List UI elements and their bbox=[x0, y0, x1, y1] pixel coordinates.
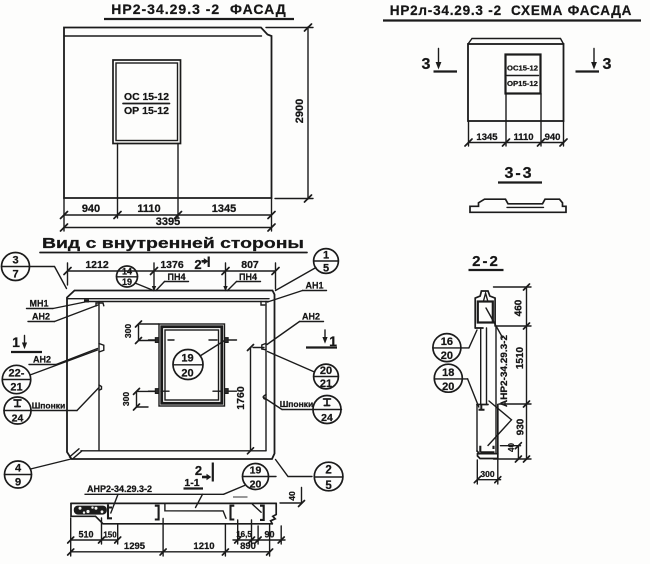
svg-text:ОС 15-12: ОС 15-12 bbox=[124, 91, 169, 103]
svg-text:150: 150 bbox=[103, 531, 117, 540]
svg-text:20: 20 bbox=[320, 365, 332, 377]
svg-text:300: 300 bbox=[121, 392, 131, 406]
svg-text:18: 18 bbox=[442, 367, 454, 379]
svg-text:1210: 1210 bbox=[193, 541, 214, 552]
svg-text:510: 510 bbox=[78, 530, 93, 540]
svg-text:Вид с внутренней стороны: Вид с внутренней стороны bbox=[42, 236, 304, 252]
svg-text:1345: 1345 bbox=[476, 132, 498, 143]
svg-text:21: 21 bbox=[10, 382, 22, 394]
svg-text:2-2: 2-2 bbox=[472, 253, 500, 270]
svg-text:5: 5 bbox=[325, 480, 332, 492]
svg-text:20: 20 bbox=[181, 368, 193, 380]
svg-text:АН2: АН2 bbox=[302, 312, 320, 322]
svg-text:40: 40 bbox=[507, 443, 516, 452]
svg-text:3395: 3395 bbox=[156, 216, 180, 228]
svg-text:1376: 1376 bbox=[160, 259, 184, 271]
svg-text:20: 20 bbox=[441, 350, 453, 362]
svg-text:9: 9 bbox=[15, 477, 21, 489]
svg-text:16,5: 16,5 bbox=[236, 530, 252, 539]
svg-text:890: 890 bbox=[240, 541, 256, 552]
svg-text:460: 460 bbox=[514, 299, 525, 316]
svg-text:1760: 1760 bbox=[235, 386, 247, 410]
svg-text:930: 930 bbox=[516, 418, 527, 435]
svg-text:40: 40 bbox=[287, 491, 297, 501]
svg-text:1: 1 bbox=[323, 250, 329, 262]
svg-text:20: 20 bbox=[250, 479, 262, 491]
svg-text:2: 2 bbox=[195, 463, 202, 478]
svg-text:ОС15-12: ОС15-12 bbox=[507, 64, 538, 73]
svg-text:1: 1 bbox=[12, 334, 20, 350]
svg-text:1110: 1110 bbox=[513, 132, 533, 143]
svg-text:МН1: МН1 bbox=[29, 299, 48, 309]
svg-text:2900: 2900 bbox=[294, 99, 306, 123]
svg-text:2: 2 bbox=[325, 465, 331, 477]
svg-text:АН2: АН2 bbox=[32, 312, 50, 322]
svg-text:3-3: 3-3 bbox=[504, 165, 533, 182]
svg-text:19: 19 bbox=[181, 353, 193, 365]
svg-text:2: 2 bbox=[194, 257, 201, 272]
svg-text:300: 300 bbox=[123, 324, 133, 338]
svg-text:940: 940 bbox=[545, 132, 561, 143]
svg-text:ПН4: ПН4 bbox=[168, 272, 186, 282]
svg-text:АН2: АН2 bbox=[33, 355, 51, 365]
svg-text:ПН4: ПН4 bbox=[239, 272, 257, 282]
svg-text:24: 24 bbox=[321, 412, 333, 424]
svg-text:21: 21 bbox=[320, 378, 332, 390]
svg-text:НР2-34.29.3 -2 ФАСАД: НР2-34.29.3 -2 ФАСАД bbox=[111, 1, 286, 17]
svg-text:807: 807 bbox=[241, 259, 259, 271]
svg-text:АНР2-34.29.3-2: АНР2-34.29.3-2 bbox=[87, 484, 152, 494]
svg-text:22-: 22- bbox=[9, 368, 25, 380]
svg-text:НР2л-34.29.3 -2 СХЕМА ФАСАДА: НР2л-34.29.3 -2 СХЕМА ФАСАДА bbox=[390, 3, 632, 18]
svg-text:3: 3 bbox=[603, 56, 612, 73]
svg-text:1-1: 1-1 bbox=[184, 477, 199, 489]
svg-text:7: 7 bbox=[12, 269, 18, 281]
svg-text:ОР 15-12: ОР 15-12 bbox=[124, 105, 169, 117]
svg-text:Шпонки: Шпонки bbox=[280, 399, 313, 409]
svg-text:1110: 1110 bbox=[137, 203, 160, 215]
svg-text:300: 300 bbox=[480, 469, 494, 479]
svg-text:16: 16 bbox=[441, 336, 453, 348]
svg-text:20: 20 bbox=[442, 381, 454, 393]
svg-text:ОР15-12: ОР15-12 bbox=[507, 79, 538, 88]
svg-text:940: 940 bbox=[82, 203, 100, 215]
svg-text:5: 5 bbox=[323, 263, 329, 275]
svg-text:АНР2-34.29.3-2: АНР2-34.29.3-2 bbox=[499, 335, 509, 407]
svg-text:19: 19 bbox=[250, 465, 262, 477]
svg-text:Шпонки: Шпонки bbox=[32, 401, 65, 411]
svg-text:19: 19 bbox=[122, 277, 132, 287]
svg-text:24: 24 bbox=[12, 413, 24, 425]
svg-text:14: 14 bbox=[122, 267, 132, 277]
svg-text:АН1: АН1 bbox=[305, 281, 323, 291]
svg-text:1212: 1212 bbox=[85, 259, 109, 271]
svg-text:1295: 1295 bbox=[124, 541, 146, 552]
svg-text:1510: 1510 bbox=[515, 346, 526, 369]
svg-text:1345: 1345 bbox=[212, 203, 236, 215]
svg-text:4: 4 bbox=[15, 463, 22, 475]
svg-text:3: 3 bbox=[422, 56, 431, 73]
svg-text:3: 3 bbox=[12, 255, 18, 267]
